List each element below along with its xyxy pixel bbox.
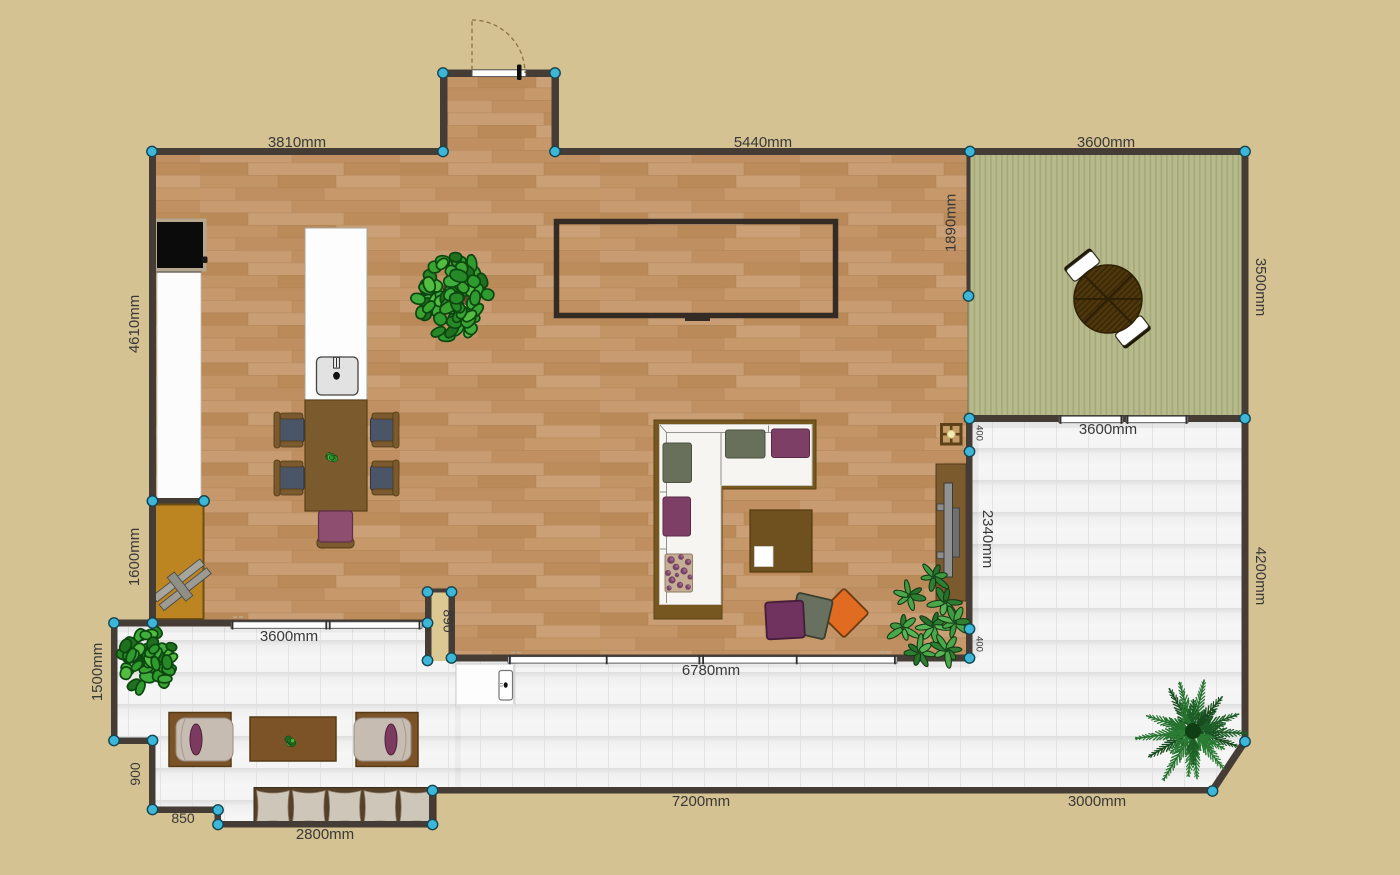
svg-text:3600mm: 3600mm [1077,134,1135,151]
svg-text:3810mm: 3810mm [268,134,326,151]
svg-text:3000mm: 3000mm [1068,793,1126,810]
svg-text:7200mm: 7200mm [672,793,730,810]
svg-text:4200mm: 4200mm [1252,547,1269,605]
svg-text:2800mm: 2800mm [296,826,354,843]
svg-text:3600mm: 3600mm [1079,421,1137,438]
svg-text:400: 400 [974,425,985,441]
svg-text:890: 890 [441,609,457,633]
svg-text:4610mm: 4610mm [126,295,143,353]
svg-text:850: 850 [171,810,195,826]
svg-text:400: 400 [974,636,985,652]
svg-text:900: 900 [127,762,143,786]
svg-text:1890mm: 1890mm [943,194,960,252]
svg-text:1500mm: 1500mm [89,643,106,701]
svg-text:2340mm: 2340mm [979,510,996,568]
svg-text:1600mm: 1600mm [126,528,143,586]
svg-text:3500mm: 3500mm [1252,258,1269,316]
svg-text:3600mm: 3600mm [260,628,318,645]
svg-text:5440mm: 5440mm [734,134,792,151]
svg-text:6780mm: 6780mm [682,662,740,679]
